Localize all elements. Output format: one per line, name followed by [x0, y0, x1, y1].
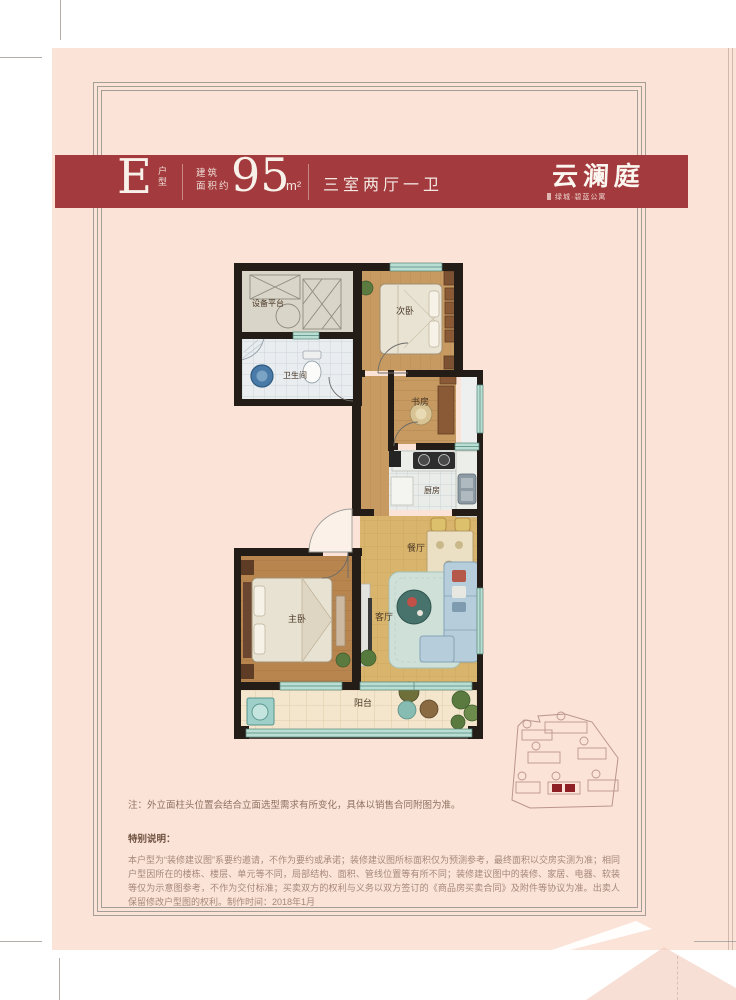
room-label-kitchen: 厨房: [424, 485, 440, 495]
key-plan-highlighted-building: [552, 784, 575, 792]
room-label-study: 书房: [411, 396, 429, 407]
special-notes: 特别说明： 本户型为“装修建议图”系要约邀请，不作为要约或承诺；装修建议图所标面…: [128, 831, 620, 919]
flyer-canvas: E 户型 建筑 面积约 95 m² 三室两厅一卫 云澜庭 绿城·碧蓝公寓: [0, 0, 736, 1000]
room-label-bedroom2: 次卧: [396, 305, 414, 316]
special-notes-title: 特别说明：: [128, 831, 620, 845]
room-label-dining: 餐厅: [407, 542, 425, 553]
site-key-plan: [512, 712, 618, 808]
facade-note: 注：外立面柱头位置会结合立面选型需求有所变化，具体以销售合同附图为准。: [128, 797, 628, 811]
room-label-equipment: 设备平台: [252, 298, 284, 308]
room-label-bathroom: 卫生间: [283, 370, 307, 380]
special-notes-body: 本户型为“装修建议图”系要约邀请，不作为要约或承诺；装修建议图所标面积仅为预测参…: [128, 854, 620, 910]
room-label-balcony: 阳台: [354, 697, 372, 708]
watermark: [552, 921, 736, 1000]
room-label-living: 客厅: [375, 611, 393, 622]
room-label-master: 主卧: [288, 613, 306, 624]
